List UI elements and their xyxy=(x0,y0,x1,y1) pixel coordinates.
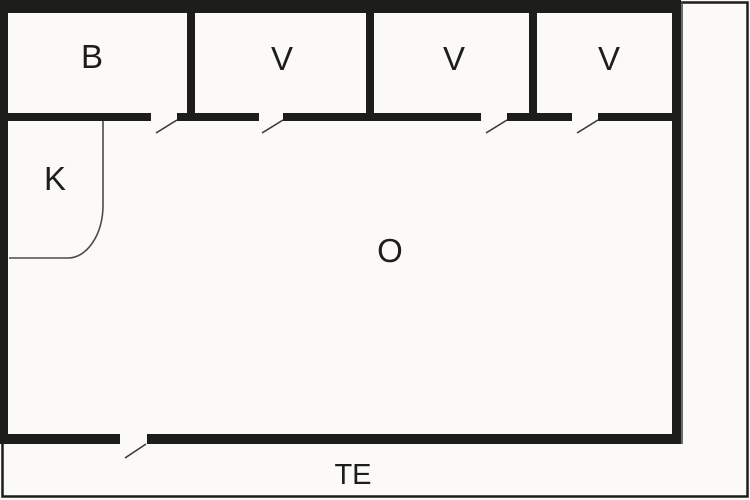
bottom-wall-right-segment xyxy=(147,434,681,444)
divider-wall-v1-v2 xyxy=(366,12,374,113)
room-label-k: K xyxy=(44,160,66,197)
left-wall xyxy=(0,0,8,444)
divider-wall-b-v1 xyxy=(187,12,195,113)
room-label-v3: V xyxy=(598,40,620,77)
room-label-v1: V xyxy=(271,40,293,77)
room-row-wall-segment-1 xyxy=(2,113,151,121)
divider-wall-v2-v3 xyxy=(529,12,537,113)
floor-plan: B V V V K O TE xyxy=(0,0,750,500)
room-row-wall-segment-4 xyxy=(507,113,572,121)
terrace-label: TE xyxy=(334,459,371,491)
room-label-b: B xyxy=(81,38,103,75)
room-label-o: O xyxy=(377,232,403,269)
room-label-v2: V xyxy=(443,40,465,77)
bottom-wall-left-segment xyxy=(2,434,120,444)
plan-background xyxy=(0,0,750,500)
top-wall xyxy=(0,0,681,13)
floor-plan-drawing: B V V V K O TE xyxy=(0,0,750,500)
room-row-wall-segment-5 xyxy=(598,113,681,121)
room-row-wall-segment-2 xyxy=(177,113,259,121)
right-wall xyxy=(672,0,681,444)
room-row-wall-segment-3 xyxy=(283,113,481,121)
